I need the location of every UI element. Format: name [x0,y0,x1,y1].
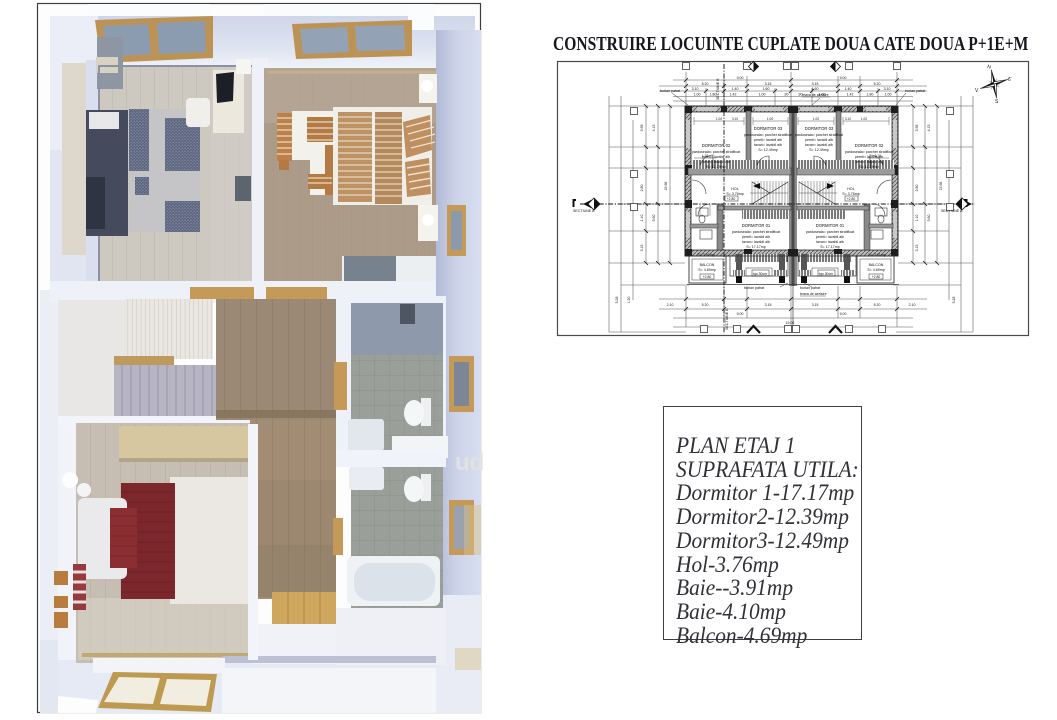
svg-text:DORMITOR 01: DORMITOR 01 [816,223,845,228]
svg-text:DORMITOR 02: DORMITOR 02 [855,143,884,148]
svg-text:DORMITOR 03: DORMITOR 03 [805,126,834,131]
svg-text:pardoseala= parchet stratifica: pardoseala= parchet stratificat [845,150,893,154]
svg-text:3.15: 3.15 [812,82,819,86]
svg-text:burlan patrat: burlan patrat [660,89,680,93]
svg-text:1.20: 1.20 [627,297,631,304]
svg-text:pardoseala= parchet stratifica: pardoseala= parchet stratificat [744,133,792,137]
svg-text:+2.80: +2.80 [703,275,712,279]
svg-text:1.76: 1.76 [702,154,708,158]
svg-text:1.60: 1.60 [812,87,819,91]
svg-text:1.40: 1.40 [845,87,852,91]
svg-text:3.10: 3.10 [692,87,699,91]
svg-text:3.15: 3.15 [765,82,772,86]
svg-text:pardoseala= parchet stratifica: pardoseala= parchet stratificat [795,133,843,137]
svg-text:HOL: HOL [847,187,854,191]
svg-text:1.00: 1.00 [759,93,766,97]
svg-text:1.42: 1.42 [847,93,854,97]
svg-text:5.20: 5.20 [874,82,881,86]
svg-text:2.10: 2.10 [909,303,916,307]
svg-text:1.76: 1.76 [875,154,881,158]
svg-text:2.80: 2.80 [915,185,919,192]
svg-text:.90: .90 [784,93,789,97]
svg-text:+2.80: +2.80 [872,275,881,279]
svg-text:1.10: 1.10 [915,215,919,222]
svg-text:1.00: 1.00 [861,117,867,121]
svg-text:15.66: 15.66 [939,182,943,191]
svg-text:tavan= lavabil alb: tavan= lavabil alb [855,160,883,164]
svg-text:burlan patrat: burlan patrat [800,286,820,290]
svg-text:3.15: 3.15 [915,245,919,252]
svg-text:3.10: 3.10 [845,117,851,121]
svg-text:9.00: 9.00 [840,312,847,316]
svg-text:tavan= lavabil alb: tavan= lavabil alb [702,160,730,164]
svg-text:tgo 30cm: tgo 30cm [753,272,767,276]
svg-text:S= 3.91mp: S= 3.91mp [868,253,885,257]
svg-text:19.00: 19.00 [786,321,795,325]
svg-text:pereti= lavabil alb: pereti= lavabil alb [742,235,770,239]
svg-text:teava de aerisire: teava de aerisire [800,292,827,296]
svg-text:3.98: 3.98 [915,125,919,132]
svg-text:3.10: 3.10 [732,117,738,121]
svg-text:+2.80: +2.80 [727,197,736,201]
svg-text:tavan= lavabil alb: tavan= lavabil alb [754,143,782,147]
svg-text:1.00: 1.00 [885,93,892,97]
svg-text:5.28: 5.28 [952,297,956,304]
svg-text:3.15: 3.15 [812,303,819,307]
svg-text:1.10: 1.10 [640,215,644,222]
svg-text:15.66: 15.66 [664,182,668,191]
svg-text:DORMITOR 01: DORMITOR 01 [742,223,771,228]
svg-text:S= 12.49mp: S= 12.49mp [758,148,777,152]
svg-text:SECTIUNE B: SECTIUNE B [725,308,729,330]
svg-text:3.10: 3.10 [884,87,891,91]
svg-text:S= 3.76mp: S= 3.76mp [842,192,859,196]
svg-text:1.00: 1.00 [694,93,701,97]
svg-text:9.00: 9.00 [737,76,744,80]
svg-text:5.60: 5.60 [927,215,931,222]
svg-text:1.42: 1.42 [730,93,737,97]
svg-text:pardoseala= parchet stratifica: pardoseala= parchet stratificat [732,230,780,234]
svg-text:ud: ud [455,449,484,476]
svg-text:1.00: 1.00 [716,117,722,121]
svg-text:5.60: 5.60 [652,215,656,222]
svg-text:HOL: HOL [731,187,738,191]
svg-text:5.28: 5.28 [615,297,619,304]
svg-text:5.20: 5.20 [702,82,709,86]
svg-text:5.20: 5.20 [874,303,881,307]
svg-text:4.15: 4.15 [927,125,931,132]
svg-text:9.00: 9.00 [840,76,847,80]
svg-text:BALCON: BALCON [700,263,715,267]
svg-text:pardoseala= parchet stratifica: pardoseala= parchet stratificat [692,150,740,154]
svg-text:S= 17.17mp: S= 17.17mp [820,245,839,249]
svg-text:1.00: 1.00 [813,117,819,121]
svg-text:S= 4.69mp: S= 4.69mp [698,268,715,272]
svg-text:DORMITOR 02: DORMITOR 02 [702,143,731,148]
svg-text:S= 3.76mp: S= 3.76mp [726,192,743,196]
svg-text:1.80: 1.80 [867,93,874,97]
svg-text:1.00: 1.00 [767,117,773,121]
svg-text:5.20: 5.20 [702,303,709,307]
svg-text:S= 12.39mp: S= 12.39mp [706,165,725,169]
svg-text:SECTIUNE A: SECTIUNE A [573,209,595,213]
svg-text:BALCON: BALCON [869,263,884,267]
svg-text:3.98: 3.98 [640,125,644,132]
svg-text:pereti= lavabil alb: pereti= lavabil alb [805,138,833,142]
svg-text:S= 12.49mp: S= 12.49mp [809,148,828,152]
svg-text:pardoseala= parchet stratifica: pardoseala= parchet stratificat [806,230,854,234]
svg-text:tavan= lavabil alb: tavan= lavabil alb [805,143,833,147]
svg-text:3.15: 3.15 [640,245,644,252]
svg-text:pereti= lavabil alb: pereti= lavabil alb [816,235,844,239]
svg-text:tavan= lavabil alb: tavan= lavabil alb [816,240,844,244]
svg-text:burlan patrat: burlan patrat [905,89,925,93]
svg-text:2.80: 2.80 [640,185,644,192]
svg-text:1.40: 1.40 [732,87,739,91]
svg-text:3.15: 3.15 [765,303,772,307]
svg-text:tavan= lavabil alb: tavan= lavabil alb [742,240,770,244]
svg-text:2.10: 2.10 [667,303,674,307]
svg-text:4.15: 4.15 [652,125,656,132]
svg-text:pereti= lavabil alb: pereti= lavabil alb [754,138,782,142]
svg-text:tgo 30cm: tgo 30cm [819,272,833,276]
svg-text:S= 3.91mp: S= 3.91mp [697,253,714,257]
svg-text:DORMITOR 03: DORMITOR 03 [754,126,783,131]
svg-text:S= 12.39mp: S= 12.39mp [859,165,878,169]
svg-text:S= 17.17mp: S= 17.17mp [746,245,765,249]
svg-text:9.00: 9.00 [737,312,744,316]
svg-text:SECTIUNE B: SECTIUNE B [716,78,720,100]
svg-text:S= 4.69mp: S= 4.69mp [867,268,884,272]
svg-text:teava de aerisire: teava de aerisire [802,93,829,97]
svg-text:burlan patrat: burlan patrat [744,286,764,290]
svg-text:+2.80: +2.80 [847,197,856,201]
svg-text:1.60: 1.60 [763,87,770,91]
